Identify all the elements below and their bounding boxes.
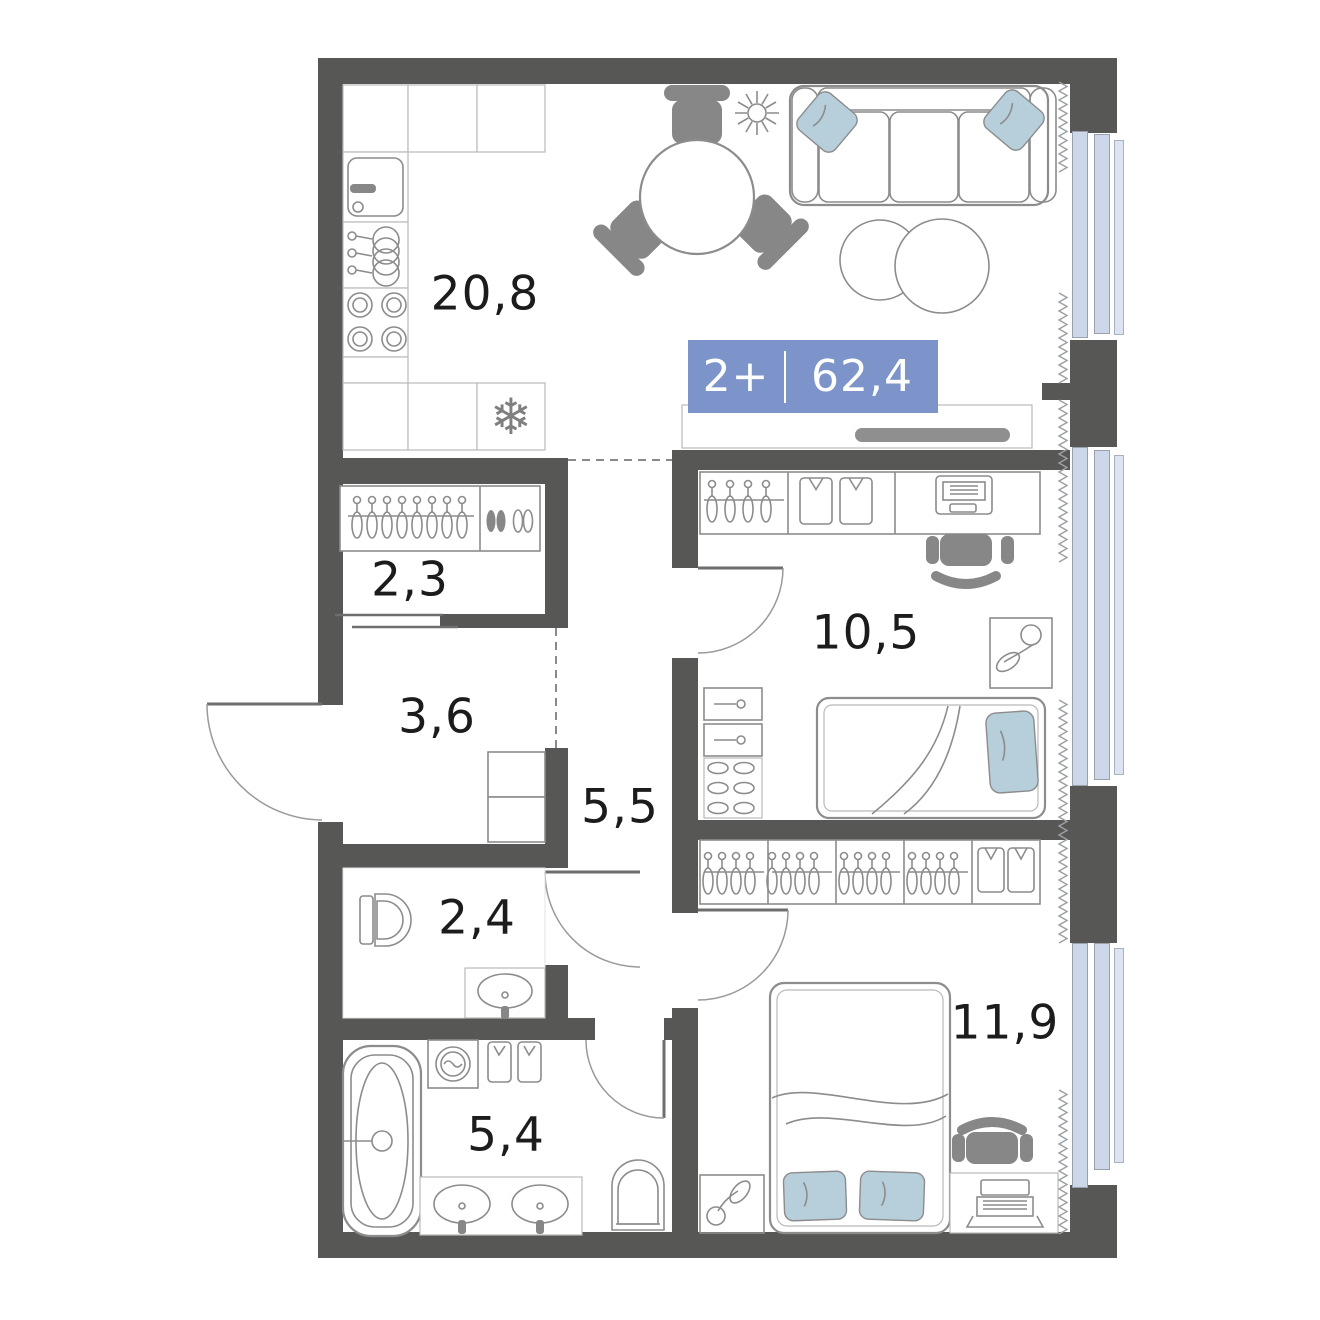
double-bed-icon bbox=[770, 983, 950, 1233]
total-area: 62,4 bbox=[786, 351, 938, 402]
wardrobe-band bbox=[700, 840, 1040, 904]
window-pane bbox=[1072, 943, 1088, 1188]
cabinet-icon bbox=[488, 752, 545, 842]
wall-wc-stub bbox=[545, 965, 568, 1018]
room-area-label-kitchen-living: 20,8 bbox=[431, 267, 540, 322]
window-pane bbox=[1094, 134, 1110, 334]
wall-hall-right bbox=[545, 748, 568, 848]
pillow bbox=[980, 86, 1048, 154]
washing-machine-icon bbox=[428, 1040, 478, 1088]
dining-set-icon bbox=[590, 85, 812, 279]
bathtub-icon bbox=[343, 1046, 421, 1236]
wall-top bbox=[318, 58, 1117, 84]
dining-chair-icon bbox=[724, 185, 812, 273]
window-pane bbox=[1072, 131, 1088, 338]
pillow bbox=[985, 710, 1038, 793]
desk-chair-icon bbox=[926, 534, 1014, 584]
towel-icon bbox=[488, 1042, 541, 1082]
window-sill bbox=[1114, 948, 1124, 1163]
door-arc-wc bbox=[545, 872, 640, 967]
room-area-label-bathroom: 5,4 bbox=[467, 1108, 545, 1163]
dining-chair-icon bbox=[590, 191, 678, 279]
fridge-icon: ❄ bbox=[490, 388, 532, 446]
opening-dashed-line bbox=[556, 460, 672, 748]
wardrobe-desk-band bbox=[700, 472, 1040, 534]
floor-plan: ❄ bbox=[0, 0, 1320, 1320]
plan-summary-badge: 2+ 62,4 bbox=[688, 340, 938, 413]
sofa-icon bbox=[790, 86, 1056, 205]
tv-icon bbox=[855, 428, 1010, 442]
room-area-label-bedroom-2: 11,9 bbox=[951, 996, 1060, 1051]
wall-corridor-right-a bbox=[672, 450, 698, 568]
wall-left-upper bbox=[318, 58, 343, 705]
room-area-label-bedroom-1: 10,5 bbox=[812, 606, 921, 661]
window-sill bbox=[1114, 140, 1124, 335]
wall-bath-stub bbox=[664, 1018, 698, 1040]
pouf-tables-icon bbox=[840, 219, 989, 313]
radiator-zigzag bbox=[1059, 82, 1067, 1234]
wardrobe-closet-icon bbox=[340, 486, 540, 551]
sink-icon bbox=[465, 968, 545, 1019]
door-arc-bedroom-2 bbox=[698, 910, 788, 1000]
toilet-icon bbox=[612, 1160, 664, 1230]
wall-corridor-right-c bbox=[672, 1008, 698, 1236]
window-pane bbox=[1094, 450, 1110, 780]
entrance-door-arc bbox=[207, 704, 322, 820]
wall-living-bottom-right bbox=[672, 450, 1070, 470]
room-area-label-wc: 2,4 bbox=[438, 891, 516, 946]
room-area-label-wardrobe: 2,3 bbox=[371, 553, 449, 608]
slippers-icon bbox=[708, 763, 754, 814]
wall-bedrooms-divider bbox=[698, 820, 1070, 840]
wall-bottom bbox=[318, 1232, 1117, 1258]
plant-frame-icon bbox=[700, 1175, 764, 1233]
desk-icon bbox=[950, 1173, 1058, 1233]
stove-icon bbox=[348, 293, 406, 351]
toilet-icon bbox=[360, 894, 411, 946]
pillow bbox=[859, 1171, 925, 1221]
plant-icon bbox=[735, 91, 779, 135]
wall-right-corner bbox=[1070, 58, 1117, 133]
pillow bbox=[793, 88, 861, 156]
laptop-icon bbox=[936, 476, 992, 514]
dining-chair-icon bbox=[664, 85, 730, 144]
dish-rack-icon bbox=[348, 227, 399, 286]
room-area-label-corridor: 5,5 bbox=[581, 780, 659, 835]
wall-left-lower bbox=[318, 822, 343, 1258]
plant-frame-icon bbox=[990, 618, 1052, 688]
wall-right-pier-2 bbox=[1070, 786, 1117, 943]
room-area-label-hallway: 3,6 bbox=[398, 690, 476, 745]
single-bed-icon bbox=[817, 698, 1045, 818]
wall-wardrobe-right bbox=[545, 458, 568, 618]
rooms-count: 2+ bbox=[688, 351, 784, 402]
shirt-icon bbox=[800, 478, 872, 524]
double-sink-icon bbox=[420, 1177, 582, 1235]
wall-hall-wc bbox=[318, 844, 568, 868]
wall-kitchen-bottom bbox=[318, 458, 568, 484]
door-arc-bathroom bbox=[586, 1040, 664, 1118]
wall-right-pier-1 bbox=[1070, 340, 1117, 447]
shelf-unit-icon bbox=[704, 688, 762, 818]
wall-stub-living bbox=[1042, 383, 1070, 400]
pillow bbox=[783, 1171, 847, 1221]
laptop-icon bbox=[967, 1180, 1043, 1227]
door-arc-bedroom-1 bbox=[698, 568, 783, 653]
window-sill bbox=[1114, 455, 1124, 775]
window-pane bbox=[1072, 447, 1088, 786]
kitchen-sink-icon bbox=[348, 158, 403, 216]
shirt-icon bbox=[978, 848, 1034, 892]
wall-right-bottom bbox=[1070, 1185, 1117, 1258]
wall-slide-stub bbox=[440, 614, 568, 628]
wall-corridor-right-b bbox=[672, 658, 698, 913]
desk-chair-icon bbox=[952, 1122, 1033, 1164]
wall-wc-bath bbox=[318, 1018, 595, 1040]
dining-table-icon bbox=[640, 140, 754, 254]
window-pane bbox=[1094, 943, 1110, 1170]
shoes-icon bbox=[487, 510, 533, 532]
